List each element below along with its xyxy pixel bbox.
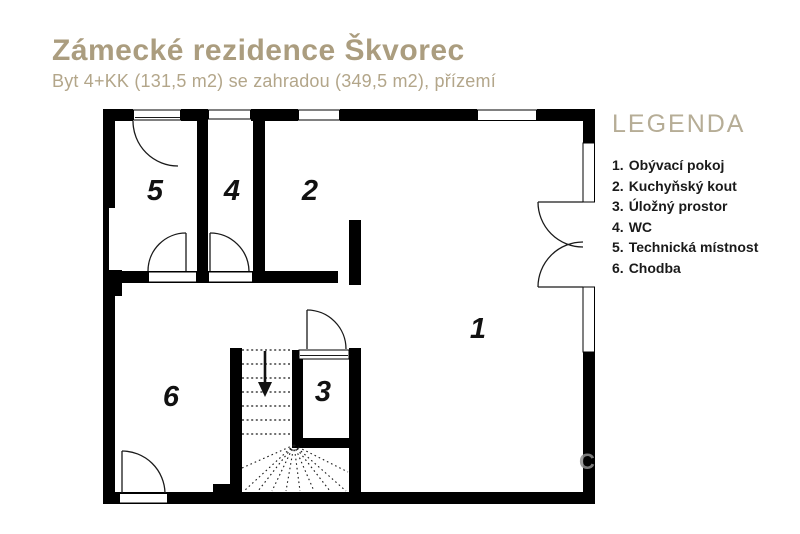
stair-winder-ray [244, 445, 294, 491]
stair-winder-ray [294, 445, 300, 491]
door-arc-room6 [122, 451, 165, 493]
french-door-opening [583, 202, 595, 287]
window-room4 [209, 110, 251, 119]
room-label-kitchen: 2 [301, 175, 318, 207]
door-arc-room5 [148, 233, 186, 271]
wall-room3-south [292, 438, 361, 448]
door-sill-room5 [149, 272, 197, 282]
window-room1-top [478, 110, 537, 121]
arrow-head [258, 382, 272, 397]
floor-plan: 1 2 3 4 5 6 C [0, 0, 800, 534]
wall-left-notch [109, 208, 115, 270]
window-room1-right-lower [583, 287, 595, 352]
watermark: C [579, 449, 595, 474]
room-label-storage: 3 [315, 376, 331, 408]
french-door-arc-upper [538, 202, 583, 247]
room-label-technical: 5 [147, 175, 164, 207]
door-sill-room6 [120, 494, 168, 504]
stair-winder-ray [258, 445, 294, 491]
wall-living-west [349, 348, 361, 504]
room-label-hallway: 6 [163, 381, 180, 413]
wall-top [340, 109, 477, 121]
wall-kitchen-living-stub [349, 220, 361, 285]
wall-top [251, 109, 298, 121]
stair-winder-ray [272, 445, 294, 491]
door-arc-entrance-room5 [133, 121, 178, 166]
room-label-living: 1 [470, 313, 486, 345]
stairs-down-arrow-icon [258, 351, 272, 397]
door-sill-room4 [209, 272, 253, 282]
stair-winder-ray [294, 445, 348, 472]
stair-winder-ray [242, 445, 294, 468]
wall-left [103, 109, 115, 504]
wall-stairs-left [230, 348, 242, 504]
stair-winder-fan [242, 445, 348, 491]
french-door-arc-lower [538, 242, 583, 287]
wall-stairs-right [292, 350, 303, 438]
wall-room5-room4 [197, 121, 208, 271]
entrance-door-sill-room5 [134, 110, 181, 120]
wall-room4-room2 [253, 121, 265, 271]
window-room1-right-upper [583, 143, 595, 202]
door-arc-room4 [210, 233, 249, 271]
window-room2 [299, 110, 340, 120]
wall-top [181, 109, 208, 121]
door-sill-room3 [299, 350, 349, 359]
wall-stairs-foot [213, 484, 232, 504]
stair-winder-ray [294, 445, 330, 491]
room-label-wc: 4 [223, 175, 240, 207]
door-arc-room3 [307, 310, 346, 349]
floorplan-page: Zámecké rezidence Škvorec Byt 4+KK (131,… [0, 0, 800, 534]
stair-winder-ray [294, 445, 346, 491]
